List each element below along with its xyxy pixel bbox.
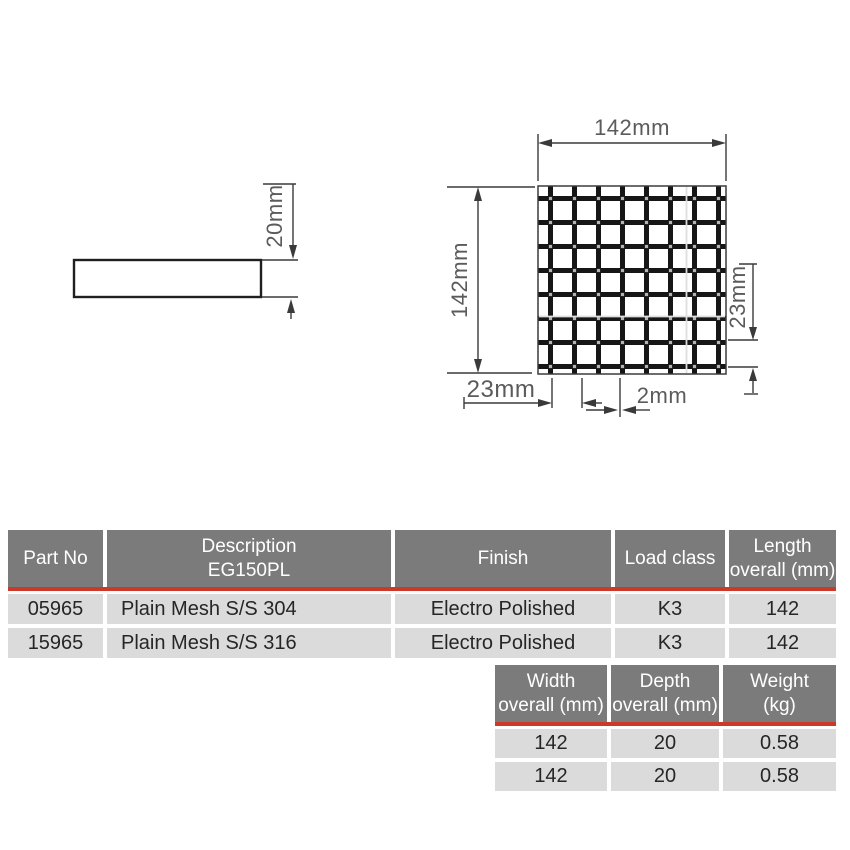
cell-part-no: 15965 (8, 628, 103, 658)
table-row: 05965 Plain Mesh S/S 304 Electro Polishe… (8, 594, 836, 624)
cell-weight: 0.58 (723, 729, 836, 758)
col-header-width-overall: Width overall (mm) (495, 665, 607, 722)
cell-width: 142 (495, 729, 607, 758)
cell-description: Plain Mesh S/S 304 (107, 594, 391, 624)
arrow-left-icon (582, 399, 596, 407)
cell-length: 142 (729, 628, 836, 658)
side-view-outline (74, 260, 261, 297)
dim-label-grid-height: 142mm (447, 242, 472, 318)
col-header-weight: Weight (kg) (723, 665, 836, 722)
header-accent-rule (495, 722, 836, 726)
spec-table: Part No Description EG150PL Finish Load … (8, 530, 836, 658)
table-row: 142 20 0.58 (495, 729, 836, 758)
dimensions-table-header: Width overall (mm) Depth overall (mm) We… (495, 665, 836, 722)
dim-pitch-bottom: 23mm (464, 376, 602, 409)
header-accent-rule (8, 587, 836, 591)
col-header-length-overall: Length overall (mm) (729, 530, 836, 587)
cell-length: 142 (729, 594, 836, 624)
cell-finish: Electro Polished (395, 594, 611, 624)
arrow-down-icon (289, 245, 297, 259)
arrow-up-icon (749, 368, 757, 381)
arrow-down-icon (474, 359, 482, 373)
dim-label-grid-width: 142mm (594, 115, 670, 140)
cell-depth: 20 (611, 762, 719, 791)
arrow-right-icon (538, 399, 552, 407)
dim-bar-width: 2mm (586, 378, 687, 417)
cell-width: 142 (495, 762, 607, 791)
col-header-load-class: Load class (615, 530, 725, 587)
dimensions-table: Width overall (mm) Depth overall (mm) We… (495, 665, 836, 791)
table-row: 142 20 0.58 (495, 762, 836, 791)
col-header-depth-overall: Depth overall (mm) (611, 665, 719, 722)
cell-depth: 20 (611, 729, 719, 758)
dim-grid-width: 142mm (538, 115, 726, 181)
cell-finish: Electro Polished (395, 628, 611, 658)
dim-label-pitch-right: 23mm (725, 265, 750, 328)
arrow-left-icon (622, 406, 636, 414)
dim-pitch-right: 23mm (725, 264, 758, 394)
arrow-up-icon (474, 187, 482, 201)
col-header-finish: Finish (395, 530, 611, 587)
cell-description: Plain Mesh S/S 316 (107, 628, 391, 658)
col-header-description: Description EG150PL (107, 530, 391, 587)
side-view: 20mm (74, 184, 298, 319)
cell-weight: 0.58 (723, 762, 836, 791)
cell-load-class: K3 (615, 628, 725, 658)
cell-part-no: 05965 (8, 594, 103, 624)
page: 20mm 142mm 14 (0, 0, 850, 850)
arrow-down-icon (749, 327, 757, 340)
arrow-right-icon (712, 139, 726, 147)
arrow-right-icon (604, 406, 618, 414)
technical-drawing: 20mm 142mm 14 (0, 0, 850, 525)
dim-label-pitch-bottom: 23mm (467, 376, 536, 403)
plan-view: 142mm 142mm 23mm (447, 115, 758, 417)
dim-label-bar-width: 2mm (637, 383, 687, 408)
table-row: 15965 Plain Mesh S/S 316 Electro Polishe… (8, 628, 836, 658)
mesh-grid (538, 186, 726, 374)
col-header-part-no: Part No (8, 530, 103, 587)
dim-label-side-height: 20mm (262, 184, 287, 247)
dim-grid-height: 142mm (447, 187, 535, 373)
spec-table-header: Part No Description EG150PL Finish Load … (8, 530, 836, 587)
cell-load-class: K3 (615, 594, 725, 624)
dim-side-height: 20mm (262, 184, 298, 319)
arrow-left-icon (538, 139, 552, 147)
